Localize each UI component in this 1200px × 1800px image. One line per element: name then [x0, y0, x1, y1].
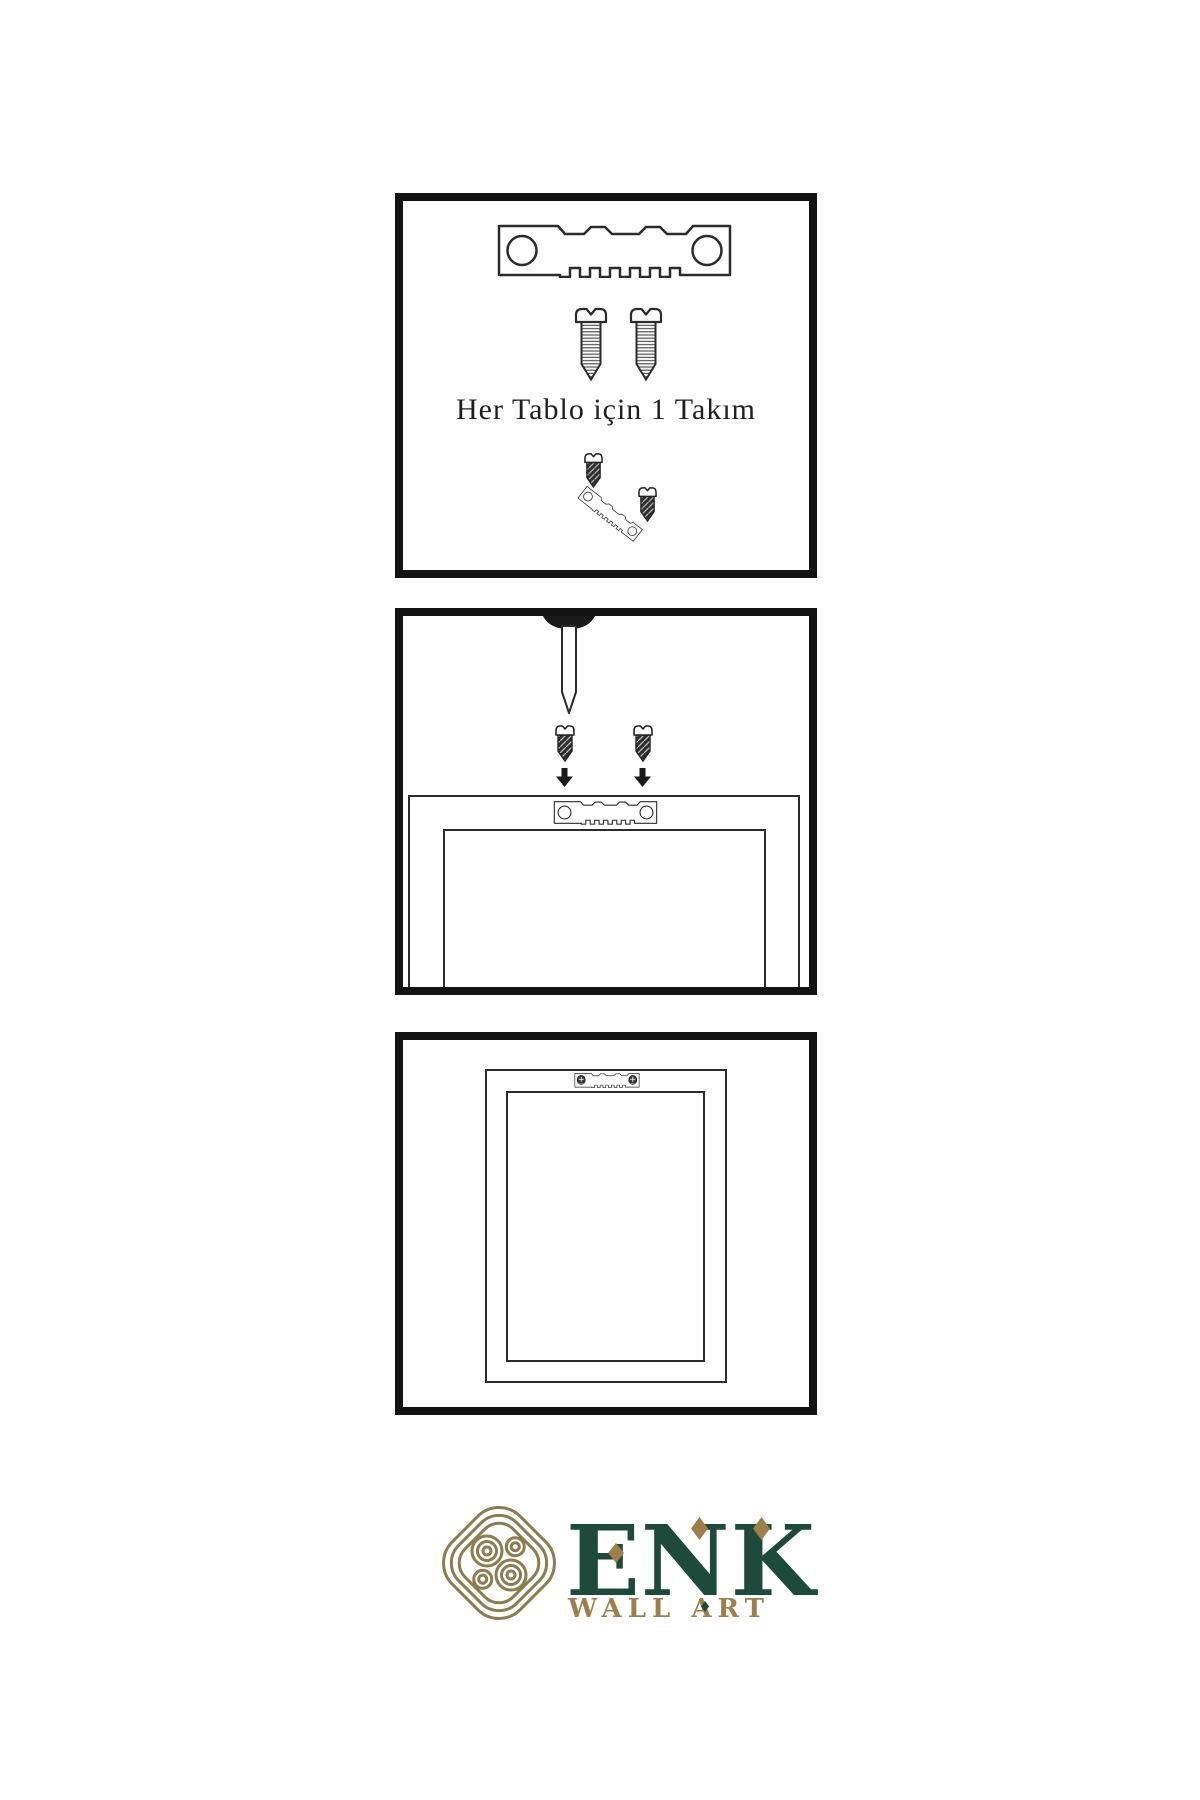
step1-panel: Her Tablo için 1 Takım	[395, 193, 817, 578]
mounted-hanger-icon	[574, 1071, 640, 1088]
frame-back-inner	[443, 829, 766, 990]
hanger-assembly-icon	[573, 451, 688, 551]
dark-screw-icon	[554, 723, 576, 763]
arrow-down-icon	[556, 768, 573, 787]
arrow-down-icon	[634, 768, 651, 787]
frame-back-inner	[506, 1091, 705, 1362]
sawtooth-hanger-icon	[553, 800, 658, 825]
step2-panel	[395, 608, 817, 995]
step3-panel	[395, 1032, 817, 1415]
dark-screw-icon	[632, 723, 654, 763]
wall-nail-icon	[541, 616, 597, 718]
knot-icon	[438, 1498, 560, 1628]
step1-caption: Her Tablo için 1 Takım	[403, 393, 809, 427]
brand-tagline: WALL ART	[568, 1594, 770, 1624]
sawtooth-hanger-icon	[496, 223, 733, 278]
screw-icon	[573, 305, 609, 383]
screw-icon	[628, 305, 664, 383]
